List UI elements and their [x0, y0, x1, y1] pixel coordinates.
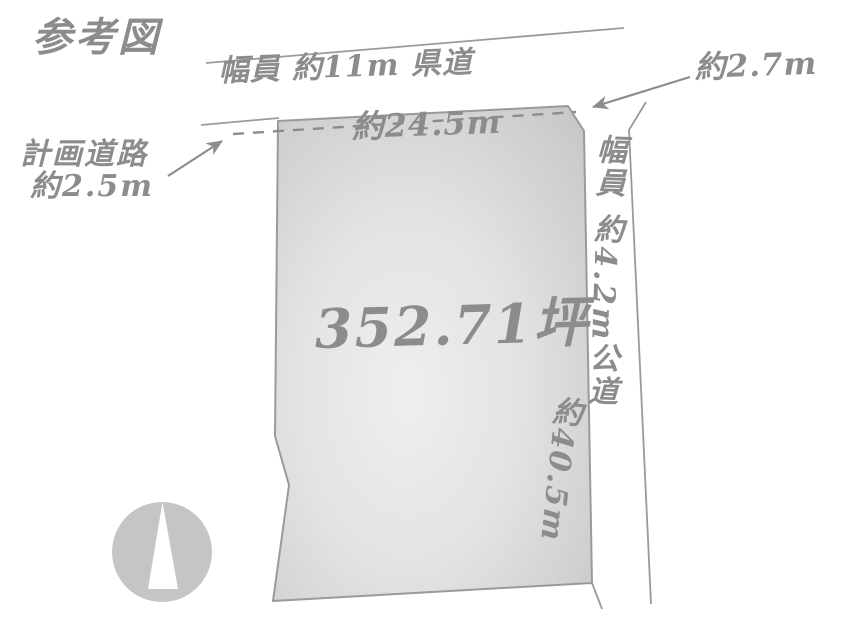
planned-road-width: 約2.5m	[20, 171, 154, 203]
planned-road-label: 計画道路 約2.5m	[20, 139, 154, 204]
right-road-left-extension-line	[592, 583, 602, 609]
planned-road-arrow	[168, 141, 222, 176]
page-title: 参考図	[32, 16, 161, 59]
north-arrow-compass-icon	[112, 502, 212, 602]
planned-road-name: 計画道路	[20, 139, 154, 171]
right-road-right-line	[629, 102, 651, 604]
reference-diagram: 参考図 幅員 約11m 県道 約24.5m 約2.7m 計画道路 約2.5m 3…	[0, 0, 850, 625]
top-edge-dimension-label: 約24.5m	[351, 105, 502, 145]
corner-cut-dimension-label: 約2.7m	[694, 48, 818, 86]
corner-cut-arrow	[593, 77, 690, 107]
land-area-label: 352.71坪	[314, 293, 590, 358]
top-road-lower-line	[201, 118, 279, 125]
